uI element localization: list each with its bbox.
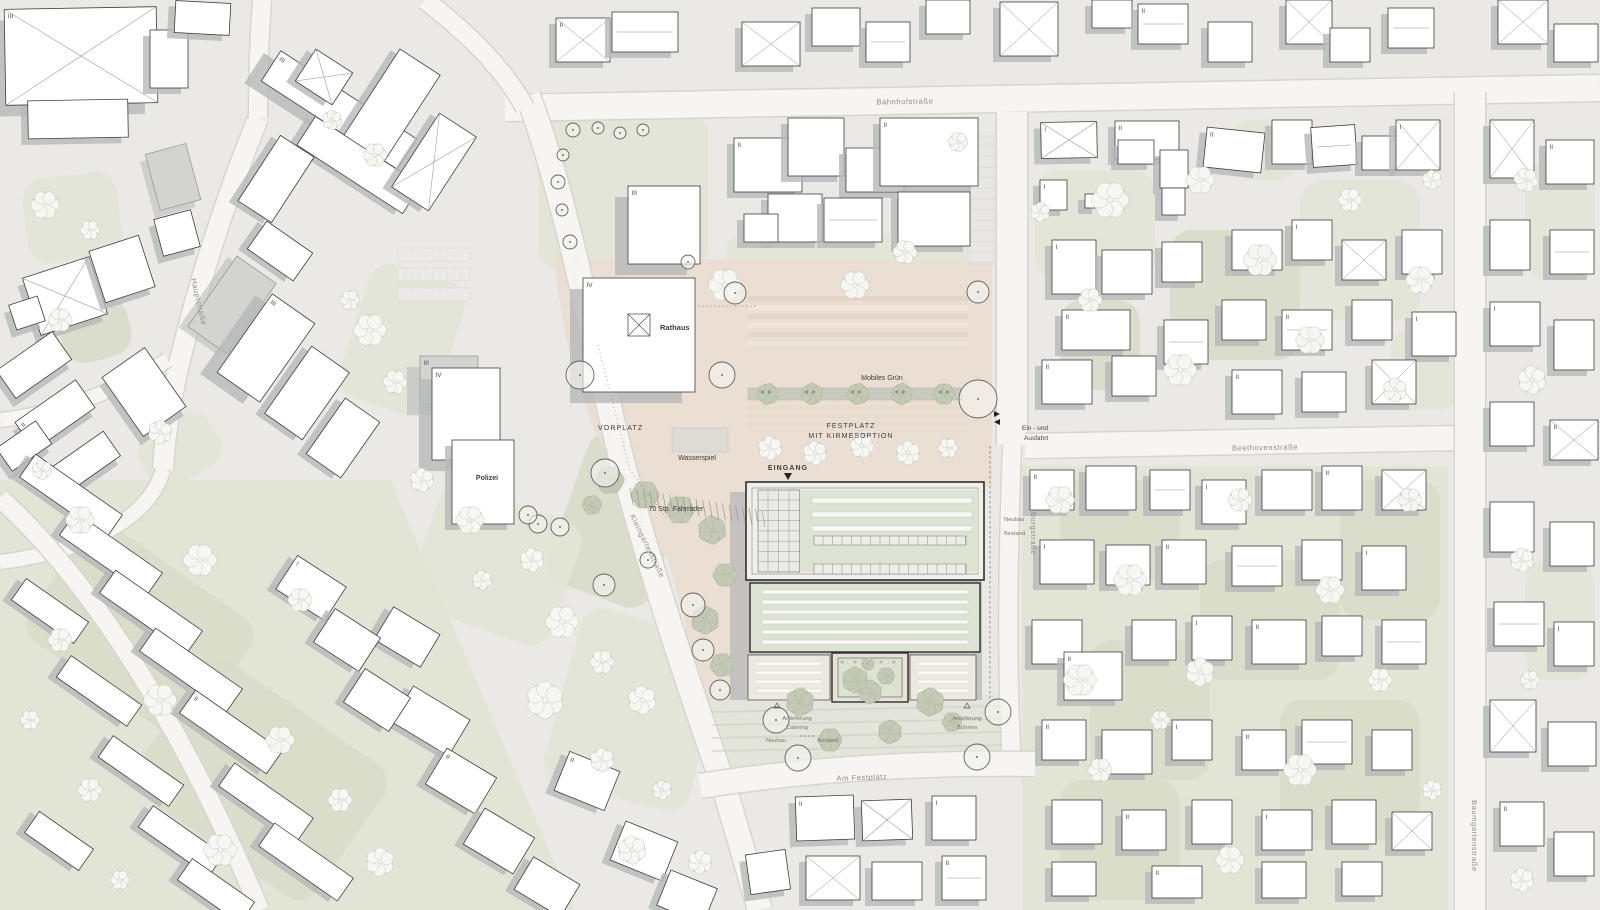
polizei-label: Polizei: [476, 475, 498, 482]
storey-label: III: [632, 190, 638, 197]
building: [1215, 300, 1266, 346]
building: I: [1405, 312, 1456, 362]
anlieferung-catering-line1: Anlieferung: [782, 716, 811, 722]
tree-outline: [724, 282, 746, 304]
storey-label: I: [1044, 184, 1046, 191]
tree-canopy: [631, 482, 660, 508]
building: [865, 862, 922, 906]
building: [605, 12, 678, 58]
tree-canopy: [841, 272, 870, 298]
tree-canopy: [456, 507, 485, 533]
tree-canopy: [1164, 355, 1197, 386]
building: [1335, 240, 1386, 286]
storey-label: II: [1068, 656, 1072, 663]
building: [1143, 470, 1190, 516]
tree-outline: [964, 744, 990, 770]
tree-canopy: [31, 192, 60, 218]
tree-canopy: [1316, 577, 1345, 603]
storey-label: II: [1046, 364, 1050, 371]
site-plan-map: IIIIIIIIIIIIIIIVIIIIIIIIIIIIVIIIIIIIIIII…: [0, 0, 1600, 910]
building: [1185, 800, 1232, 850]
tree-outline: [710, 680, 730, 700]
tree-outline: [985, 699, 1011, 725]
building: [738, 849, 791, 901]
tree-canopy: [938, 439, 958, 457]
building: [1045, 800, 1102, 850]
tree-canopy: [590, 651, 614, 673]
building: [1155, 242, 1202, 288]
festplatz-label-line2: MIT KIRMESOPTION: [808, 433, 893, 440]
building: II: [1145, 866, 1202, 904]
anlieferung-buehnen-line2: Bühnen: [957, 725, 977, 731]
storey-label: II: [1246, 734, 1250, 741]
tree-canopy: [1064, 665, 1097, 696]
tree-canopy: [48, 309, 72, 331]
building: I: [1389, 120, 1440, 176]
building: [1304, 125, 1358, 174]
storey-label: I: [936, 800, 938, 807]
storey-label: I: [1044, 544, 1046, 551]
building: [1547, 832, 1594, 882]
tree-canopy: [288, 589, 312, 611]
tree-canopy: [933, 384, 955, 404]
storey-label: II: [1142, 8, 1146, 15]
building: [1255, 862, 1306, 904]
tree-canopy: [110, 871, 130, 889]
tree-canopy: [1368, 669, 1392, 691]
building: II: [1055, 310, 1130, 356]
building: II: [549, 18, 610, 68]
building: [1323, 28, 1370, 68]
building: II: [1493, 802, 1544, 852]
storey-label: I: [1044, 126, 1046, 133]
building: [1483, 402, 1534, 452]
tree-canopy: [66, 507, 95, 533]
festplatz-label-line1: FESTPLATZ: [826, 423, 875, 430]
tree-outline: [681, 593, 705, 617]
storey-label: II: [1504, 806, 1508, 813]
storey-label: II: [560, 22, 564, 29]
storey-label: IV: [436, 372, 443, 379]
tree-canopy: [1406, 267, 1435, 293]
tree-canopy: [1398, 489, 1422, 511]
street-label-baumgartenstrasse: Baumgartenstraße: [1470, 800, 1479, 872]
tree-canopy: [1114, 565, 1147, 596]
building: [1541, 722, 1596, 772]
building: II: [1539, 140, 1594, 190]
storey-label: II: [1326, 470, 1330, 477]
tree-canopy: [713, 564, 737, 586]
building: I: [925, 796, 976, 846]
tree-canopy: [184, 545, 217, 576]
building: II: [788, 795, 855, 847]
storey-label: II: [1119, 125, 1123, 132]
tree-outline: [967, 281, 989, 303]
tree-canopy: [546, 607, 579, 638]
tree-canopy: [1228, 489, 1252, 511]
building: II: [1225, 370, 1282, 420]
building: I: [1185, 616, 1232, 666]
tree-canopy: [204, 835, 237, 866]
building: I: [1033, 540, 1094, 590]
storey-label: II: [1256, 624, 1260, 631]
building: II: [1315, 466, 1362, 516]
tree-outline: [519, 506, 537, 524]
tree-canopy: [80, 221, 100, 239]
tree-outline: [551, 518, 569, 536]
tree-outline: [556, 204, 568, 216]
storey-label: I: [1558, 626, 1560, 633]
street-label-am-festplatz: Am Festplatz: [836, 772, 887, 783]
neubau-label-east: Neubau: [1004, 517, 1024, 523]
building: [1385, 812, 1432, 856]
building: I: [1355, 546, 1406, 596]
storey-label: II: [1156, 870, 1160, 877]
building: II: [873, 118, 978, 192]
ein-und-label: Ein - und: [1022, 425, 1048, 432]
bestand-label-south: Bestand: [817, 738, 838, 744]
storey-label: I: [1416, 316, 1418, 323]
anlieferung-catering-line2: Catering: [786, 725, 808, 731]
building: [1079, 466, 1136, 516]
rathaus-label: Rathaus: [660, 323, 690, 332]
building: II: [1035, 360, 1092, 410]
tree-outline: [566, 123, 580, 137]
building: [735, 22, 800, 72]
building: [21, 99, 129, 145]
building: II: [1035, 720, 1086, 766]
building: [1335, 862, 1382, 902]
tree-canopy: [363, 144, 387, 166]
storey-label: I: [1296, 224, 1298, 231]
storey-label: II: [1126, 814, 1130, 821]
storey-label: II: [1046, 724, 1050, 731]
building: II: [1131, 4, 1188, 50]
storey-label: II: [1286, 314, 1290, 321]
storey-label: I: [1056, 244, 1058, 251]
tree-outline: [614, 127, 626, 139]
storey-label: I: [1366, 550, 1368, 557]
building: [817, 198, 882, 248]
tree-outline: [637, 124, 649, 136]
building: [1325, 800, 1376, 850]
tree-canopy: [354, 315, 387, 346]
tree-canopy: [1186, 167, 1215, 193]
building: [805, 8, 860, 52]
building: [854, 799, 913, 847]
building: [1201, 22, 1252, 68]
storey-label: II: [884, 122, 888, 129]
building: [1095, 250, 1152, 300]
tree-canopy: [328, 789, 352, 811]
building: [781, 118, 844, 182]
tree-outline: [959, 380, 997, 418]
storey-label: II: [1066, 314, 1070, 321]
fahrraeder-label: 70 Stp. Fahrräder: [649, 506, 705, 513]
bestand-label-east: Bestand: [1004, 531, 1025, 537]
storey-label: I: [1494, 306, 1496, 313]
storey-label: II: [1550, 144, 1554, 151]
building: [1483, 220, 1530, 276]
building: [1225, 546, 1282, 592]
storey-label: I: [1266, 814, 1268, 821]
tree-canopy: [20, 711, 40, 729]
glass-roof-grid: [758, 490, 800, 572]
tree-canopy: [1296, 327, 1325, 353]
building: [1255, 470, 1312, 516]
tree-outline: [566, 361, 594, 389]
building: I: [1165, 720, 1212, 766]
street-label-burgstrasse: Burgstraße: [1029, 512, 1038, 555]
storey-label: IV: [587, 282, 594, 289]
building: [143, 30, 188, 94]
storey-label: II: [1034, 474, 1038, 481]
tree-outline: [692, 639, 714, 661]
tree-canopy: [1046, 487, 1075, 513]
street-label-beethovenstrasse: Beethovenstraße: [1232, 442, 1298, 452]
tree-canopy: [266, 727, 295, 753]
tree-canopy: [1150, 711, 1170, 729]
storey-label: I: [1206, 484, 1208, 491]
building: [1345, 300, 1392, 346]
storey-label: I: [1196, 620, 1198, 627]
tree-outline: [551, 175, 565, 189]
storey-label: I: [1400, 124, 1402, 131]
anlieferung-buehnen-line1: Anlieferung: [952, 716, 981, 722]
building: II: [1115, 810, 1166, 856]
building: II: [1245, 620, 1306, 670]
building: [1543, 230, 1594, 280]
ausfahrt-label: Ausfahrt: [1024, 435, 1048, 442]
building: [1543, 522, 1594, 572]
tree-canopy: [48, 629, 72, 651]
vorplatz-label: VORPLATZ: [598, 425, 643, 432]
building: [859, 22, 910, 68]
tree-canopy: [78, 779, 102, 801]
building: I: [1034, 122, 1098, 165]
mobiles-gruen-label: Mobiles Grün: [861, 375, 903, 382]
building: I: [1483, 302, 1540, 352]
building: [1085, 0, 1132, 34]
tree-outline: [681, 255, 695, 269]
tree-canopy: [1520, 671, 1540, 689]
building: I: [1547, 622, 1594, 672]
building: [1315, 616, 1362, 662]
storey-label: I: [1176, 724, 1178, 731]
building: [1105, 356, 1156, 402]
building: [1491, 0, 1548, 50]
tree-canopy: [1078, 289, 1102, 311]
building: [1295, 372, 1346, 418]
neubau-label-south: Neubau: [766, 738, 786, 744]
tree-outline: [557, 149, 569, 161]
building: II: [935, 856, 986, 906]
tree-outline: [785, 745, 811, 771]
tree-outline: [709, 362, 735, 388]
tree-canopy: [1338, 189, 1362, 211]
wasserspiel-label: Wasserspiel: [678, 455, 716, 462]
tree-outline: [591, 459, 619, 487]
building: [1483, 502, 1534, 558]
storey-label: II: [946, 860, 950, 867]
storey-label: II: [1236, 374, 1240, 381]
building: [919, 0, 970, 40]
building: II: [1543, 420, 1598, 466]
building: [1045, 862, 1096, 902]
building: [799, 856, 860, 906]
building: I: [1255, 810, 1312, 856]
tree-canopy: [1088, 759, 1112, 781]
site-plan-viewport: IIIIIIIIIIIIIIIVIIIIIIIIIIIIVIIIIIIIIIII…: [0, 0, 1600, 910]
eingang-label: EINGANG: [768, 465, 808, 472]
storey-label: III: [8, 13, 14, 20]
tree-canopy: [340, 291, 360, 309]
street-label-bahnhofstrasse: Bahnhofstraße: [876, 97, 933, 107]
building: [1483, 700, 1536, 758]
building: II: [1155, 540, 1206, 590]
storey-label: II: [1166, 544, 1170, 551]
tree-canopy: [1284, 755, 1317, 786]
building: [167, 0, 231, 41]
tree-canopy: [877, 668, 895, 684]
building: [993, 2, 1058, 62]
building: [1365, 730, 1412, 776]
tree-outline: [592, 122, 604, 134]
tree-canopy: [1244, 245, 1277, 276]
storey-label: II: [799, 801, 803, 808]
building: [1487, 602, 1544, 652]
tree-canopy: [144, 685, 177, 716]
building: [1153, 150, 1188, 194]
tree-canopy: [1216, 847, 1245, 873]
building: [1375, 620, 1426, 670]
storey-label: II: [738, 142, 742, 149]
building: II: [1235, 730, 1286, 776]
tree-outline: [593, 574, 615, 596]
building: [1125, 620, 1176, 666]
building: I: [1285, 220, 1332, 266]
storey-label: III: [424, 360, 430, 367]
building: [1547, 320, 1594, 376]
building: [1381, 8, 1434, 54]
building: [1547, 24, 1598, 68]
tree-outline: [563, 235, 577, 249]
storey-label: II: [1554, 424, 1558, 431]
